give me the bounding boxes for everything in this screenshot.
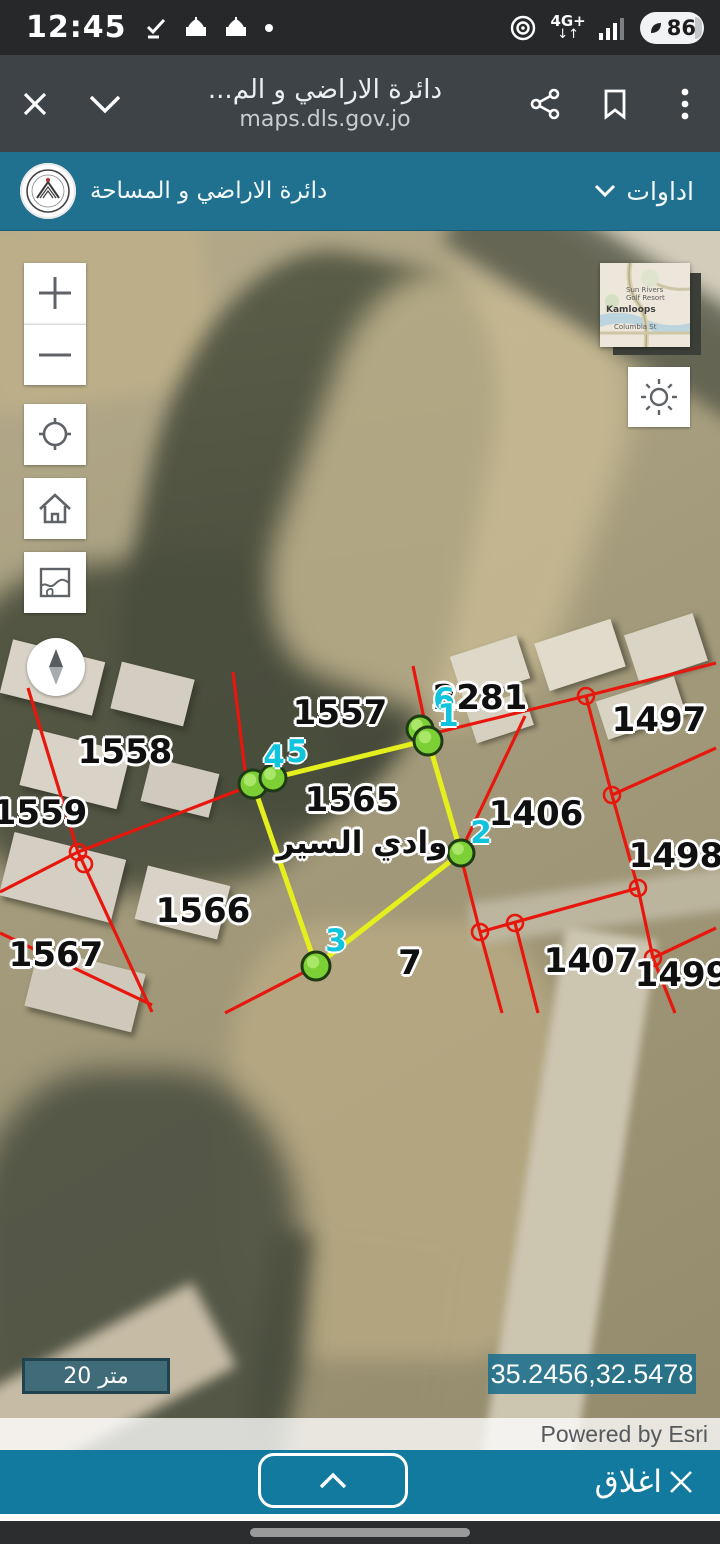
parcel-number-label: 1407 — [544, 941, 639, 981]
phone-screen: 12:45 4G+ ↓↑ 86 — [0, 0, 720, 1544]
share-button[interactable] — [510, 69, 580, 139]
parcel-number-label: 1406 — [489, 794, 584, 834]
close-icon — [19, 88, 51, 120]
sync-check-icon — [143, 15, 169, 41]
network-type-indicator: 4G+ ↓↑ — [550, 14, 585, 41]
overview-map[interactable]: Kamloops Sun Rivers Golf Resort Columbia… — [600, 263, 690, 347]
bookmark-icon — [601, 88, 629, 120]
map-viewport[interactable]: 1557228114971558155915651406149815661567… — [0, 230, 720, 1450]
cadastre-line — [480, 932, 502, 1013]
locate-icon — [24, 404, 86, 465]
chevron-down-icon — [87, 92, 123, 116]
site-header: دائرة الاراضي و المساحة اداوات — [0, 152, 720, 230]
locate-button[interactable] — [24, 404, 86, 465]
parcel-number-label: 1559 — [0, 793, 87, 833]
signal-bars-icon — [598, 15, 628, 41]
vertex-marker-highlight — [307, 956, 320, 969]
footer-divider — [0, 1514, 720, 1521]
cadastre-line — [0, 852, 78, 892]
parcel-number-label: 1497 — [612, 700, 707, 740]
esri-attribution: Powered by Esri — [0, 1418, 720, 1450]
vertex-marker-highlight — [452, 843, 464, 855]
vertex-number-label: 5 — [286, 734, 308, 770]
vertex-number-label: 1 — [437, 698, 459, 734]
clock: 12:45 — [26, 10, 127, 45]
parcel-number-label: 1557 — [293, 693, 388, 733]
basemap-button[interactable] — [24, 552, 86, 613]
mosque-app-icon — [183, 15, 209, 41]
hotspot-icon — [508, 13, 538, 43]
cadastre-line — [233, 672, 247, 787]
zoom-out-button[interactable] — [24, 324, 86, 385]
collapse-button[interactable] — [70, 69, 140, 139]
bookmark-button[interactable] — [580, 69, 650, 139]
mosque-app-icon — [223, 15, 249, 41]
parcel-number-label: 1498 — [629, 836, 720, 876]
chevron-down-icon — [594, 183, 616, 199]
vertex-number-label: 3 — [325, 923, 347, 959]
browser-custom-tab-bar: دائرة الاراضي و الم... maps.dls.gov.jo — [0, 55, 720, 152]
cadastre-line — [515, 923, 538, 1013]
plus-icon — [24, 263, 86, 324]
dls-logo — [20, 163, 76, 219]
brightness-basemap-button[interactable] — [628, 367, 690, 427]
kebab-menu-icon — [680, 87, 690, 121]
battery-indicator: 86 — [640, 12, 704, 44]
share-icon — [529, 88, 561, 120]
close-sheet-label: اغلاق — [595, 1464, 662, 1500]
minimap-street-label: Columbia St — [614, 323, 656, 331]
bottom-sheet-bar: اغلاق — [0, 1450, 720, 1514]
minus-icon — [24, 325, 86, 386]
parcel-number-label: 1499 — [635, 955, 720, 995]
scale-bar: 20 متر — [22, 1358, 170, 1394]
vertex-marker-highlight — [244, 774, 257, 787]
cadastre-line — [612, 748, 716, 795]
map-thumbnail-icon — [24, 552, 86, 613]
page-url: maps.dls.gov.jo — [239, 107, 410, 132]
tools-menu-label: اداوات — [626, 177, 694, 206]
parcel-number-label: 1566 — [156, 891, 251, 931]
chevron-up-icon — [316, 1471, 350, 1491]
status-bar: 12:45 4G+ ↓↑ 86 — [0, 0, 720, 55]
notification-dot-icon — [263, 22, 275, 34]
expand-sheet-button[interactable] — [258, 1453, 408, 1508]
cadastre-line — [480, 888, 638, 932]
minimap-poi-label: Sun Rivers Golf Resort — [626, 287, 672, 302]
cadastre-line — [653, 928, 716, 958]
browser-menu-button[interactable] — [650, 69, 720, 139]
page-title: دائرة الاراضي و الم... — [208, 75, 442, 105]
tools-menu-button[interactable]: اداوات — [594, 177, 694, 206]
coordinates-readout: 35.2456,32.5478 — [488, 1354, 696, 1394]
cadastre-line — [586, 696, 612, 795]
close-sheet-button[interactable]: اغلاق — [595, 1450, 696, 1514]
page-title-block: دائرة الاراضي و الم... maps.dls.gov.jo — [140, 75, 510, 132]
sun-icon — [637, 375, 681, 419]
home-extent-button[interactable] — [24, 478, 86, 539]
vertex-number-label: 2 — [470, 815, 492, 851]
compass-needle-icon — [34, 645, 78, 689]
compass-button[interactable] — [27, 638, 85, 696]
gesture-pill[interactable] — [250, 1528, 470, 1537]
android-nav-bar — [0, 1521, 720, 1544]
cadastre-line — [78, 787, 247, 852]
parcel-number-label: 1558 — [78, 732, 173, 772]
cadastre-line — [638, 888, 653, 958]
dls-seal-icon — [25, 168, 71, 214]
close-tab-button[interactable] — [0, 69, 70, 139]
org-name: دائرة الاراضي و المساحة — [90, 178, 327, 204]
cadastre-line — [586, 663, 716, 696]
vertex-marker-highlight — [419, 731, 432, 744]
parcel-number-label: 7 — [398, 943, 422, 983]
place-name-label: وادي السير — [277, 825, 448, 861]
zoom-in-button[interactable] — [24, 263, 86, 324]
parcel-number-label: 1567 — [9, 935, 104, 975]
minimap-city-label: Kamloops — [606, 305, 656, 315]
close-icon — [666, 1467, 696, 1497]
battery-saver-icon — [648, 20, 664, 36]
parcel-number-label: 1565 — [305, 780, 400, 820]
vertex-number-label: 4 — [263, 739, 285, 775]
home-icon — [24, 478, 86, 539]
